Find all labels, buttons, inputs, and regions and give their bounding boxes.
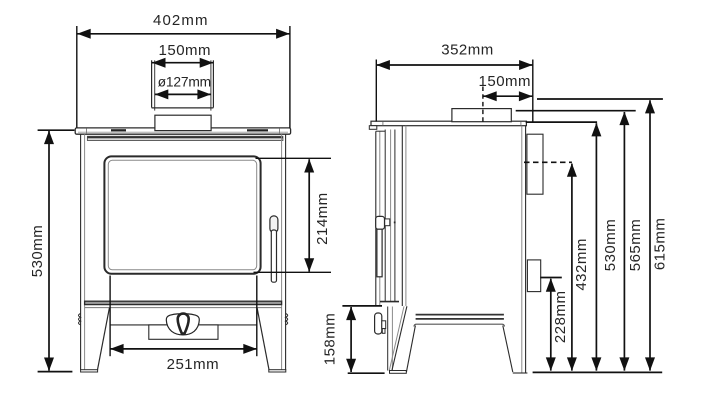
- svg-text:615mm: 615mm: [651, 218, 668, 271]
- svg-text:251mm: 251mm: [167, 356, 220, 373]
- svg-text:228mm: 228mm: [552, 291, 569, 344]
- svg-text:ø127mm: ø127mm: [158, 75, 211, 90]
- svg-text:530mm: 530mm: [602, 219, 619, 272]
- svg-text:158mm: 158mm: [321, 313, 338, 366]
- svg-text:402mm: 402mm: [153, 12, 209, 29]
- svg-text:565mm: 565mm: [627, 219, 644, 272]
- svg-text:150mm: 150mm: [479, 73, 532, 90]
- svg-text:150mm: 150mm: [159, 42, 212, 59]
- svg-text:352mm: 352mm: [441, 42, 494, 59]
- svg-text:432mm: 432mm: [573, 238, 590, 291]
- svg-text:214mm: 214mm: [314, 192, 331, 245]
- svg-text:530mm: 530mm: [29, 225, 46, 278]
